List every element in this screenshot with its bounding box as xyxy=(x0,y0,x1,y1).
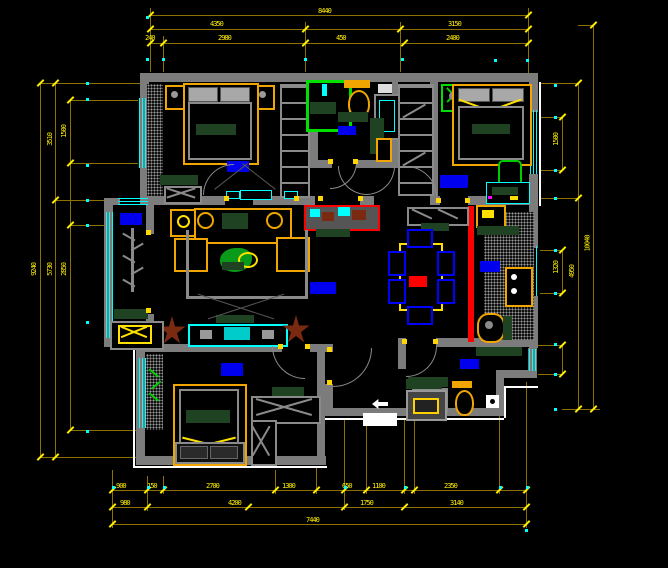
blanket xyxy=(472,124,510,134)
tv-shelf xyxy=(216,315,254,323)
rug xyxy=(460,359,479,369)
dim-ext xyxy=(70,163,138,164)
desk-item xyxy=(510,196,518,200)
dim-ext xyxy=(344,420,345,510)
wall-bath2-left xyxy=(398,347,406,369)
pillow xyxy=(188,87,218,102)
grip-dot xyxy=(554,116,557,119)
dim-line xyxy=(150,15,528,16)
dim-ext xyxy=(366,414,367,494)
dim-line xyxy=(562,345,563,374)
toilet2-bowl xyxy=(455,390,474,416)
dim-tick xyxy=(559,370,567,378)
dim-label: 2980 xyxy=(218,35,231,42)
grip-dot xyxy=(499,486,502,489)
dim-line xyxy=(70,100,71,430)
dim-label: 1500 xyxy=(553,133,560,146)
entry-mat-inner xyxy=(413,398,439,414)
door-jamb xyxy=(465,198,470,203)
pillow xyxy=(220,87,250,102)
door-swing xyxy=(406,346,437,377)
grip-dot xyxy=(526,59,529,62)
grip-dot xyxy=(404,486,407,489)
finish-line xyxy=(504,388,506,418)
dim-ext xyxy=(414,418,415,494)
dim-ext xyxy=(70,100,138,101)
door-swing xyxy=(366,166,395,195)
footboard-cell xyxy=(210,446,238,459)
grip-dot xyxy=(112,486,115,489)
dim-label: 1750 xyxy=(360,500,373,507)
dim-label: 1320 xyxy=(553,261,560,274)
grip-dot xyxy=(554,249,557,252)
kettle-lid xyxy=(485,321,493,329)
door-swing xyxy=(338,166,367,195)
counter-strip xyxy=(503,316,512,340)
grip-dot xyxy=(554,292,557,295)
aquarium-rock xyxy=(352,210,366,220)
wardrobe-x xyxy=(251,420,277,466)
stove xyxy=(505,267,533,307)
dim-ext xyxy=(499,414,500,494)
hall-bench xyxy=(160,175,198,185)
finish-line xyxy=(539,82,541,206)
dim-label: 2400 xyxy=(446,35,459,42)
sliding-door xyxy=(240,190,272,200)
dim-tick xyxy=(559,289,567,297)
door-swing xyxy=(203,164,234,195)
window xyxy=(118,198,148,205)
dim-label: 240 xyxy=(145,35,155,42)
dining-chair xyxy=(407,306,433,325)
dim-line xyxy=(112,490,526,491)
dim-label: 9240 xyxy=(31,263,38,276)
dim-label: 10040 xyxy=(585,235,592,251)
wall-interior xyxy=(325,384,333,410)
rug xyxy=(120,213,142,225)
grip-dot xyxy=(86,321,89,324)
rug xyxy=(480,261,500,272)
dim-line xyxy=(562,250,563,293)
burner xyxy=(511,274,517,280)
rug xyxy=(440,177,467,188)
dim-label: 3510 xyxy=(47,133,54,146)
balcony-shelf xyxy=(114,309,148,319)
grip-dot xyxy=(525,529,528,532)
speaker xyxy=(200,330,212,339)
shower-shelf xyxy=(310,102,336,114)
dim-label: 7440 xyxy=(306,517,319,524)
grip-dot xyxy=(554,169,557,172)
sofa-cushion xyxy=(222,213,248,229)
dining-chair xyxy=(388,279,406,304)
door-jamb xyxy=(328,159,333,164)
window xyxy=(106,212,113,338)
door-jamb xyxy=(353,159,358,164)
grip-dot xyxy=(554,373,557,376)
nightstand-lamp xyxy=(259,91,266,98)
door-jamb xyxy=(318,196,323,201)
grip-dot xyxy=(146,16,149,19)
rug xyxy=(310,282,336,294)
grip-dot xyxy=(86,82,89,85)
dim-label: 1500 xyxy=(61,125,68,138)
grip-dot xyxy=(86,224,89,227)
table-centerpiece xyxy=(409,276,427,287)
shelf-niche xyxy=(378,84,392,93)
grip-dot xyxy=(304,58,307,61)
door-jamb xyxy=(358,196,363,201)
grip-dot xyxy=(86,164,89,167)
dim-line xyxy=(150,43,528,44)
tv xyxy=(224,327,250,340)
desk-item xyxy=(488,196,492,199)
door-jamb xyxy=(146,230,151,235)
door-jamb xyxy=(436,198,441,203)
door-swing xyxy=(333,348,372,387)
dim-label: 3140 xyxy=(450,500,463,507)
grip-dot xyxy=(401,58,404,61)
door-jamb xyxy=(433,339,438,344)
kitchen-sink xyxy=(482,210,494,218)
grip-dot xyxy=(86,98,89,101)
sofa-arm xyxy=(266,212,283,229)
finish-line xyxy=(504,386,538,388)
grip-dot xyxy=(162,58,165,61)
door-jamb xyxy=(327,347,332,352)
grip-dot xyxy=(86,430,89,433)
grip-dot xyxy=(554,343,557,346)
dim-line xyxy=(150,29,528,30)
toilet2-tank xyxy=(452,381,472,388)
dining-chair xyxy=(437,251,455,276)
burner xyxy=(511,288,517,294)
dim-ext xyxy=(55,200,104,201)
dim-ext xyxy=(540,83,578,84)
dining-chair xyxy=(407,229,433,248)
door-jamb xyxy=(224,196,229,201)
partition-red xyxy=(468,206,474,342)
bath2-counter xyxy=(476,347,522,356)
grip-dot xyxy=(344,486,347,489)
dim-line xyxy=(562,117,563,170)
door-jamb xyxy=(278,344,283,349)
footboard-cell xyxy=(180,446,208,459)
grip-dot xyxy=(86,199,89,202)
grip-dot xyxy=(163,486,166,489)
bath-cabinet xyxy=(338,112,368,122)
dim-label: 4950 xyxy=(569,265,576,278)
toilet-tank xyxy=(344,80,370,88)
dim-label: 980 xyxy=(120,500,130,507)
dim-label: 4200 xyxy=(228,500,241,507)
wall-interior xyxy=(310,344,325,352)
dim-line xyxy=(40,83,41,457)
dim-ext xyxy=(70,430,136,431)
window xyxy=(529,349,536,371)
grip-dot xyxy=(554,197,557,200)
rug xyxy=(221,363,243,376)
dim-label: 4350 xyxy=(210,21,223,28)
grip-dot xyxy=(526,486,529,489)
finish-line xyxy=(133,466,327,468)
door-jamb xyxy=(402,339,407,344)
coffee-table-leaf xyxy=(222,262,244,270)
door-jamb xyxy=(305,344,310,349)
dim-ext xyxy=(404,418,405,494)
blanket xyxy=(186,410,230,423)
dim-label: 2700 xyxy=(206,483,219,490)
dim-line xyxy=(578,83,579,409)
blanket xyxy=(196,124,236,135)
grip-dot xyxy=(554,408,557,411)
floor-plan-canvas: 8440 4350 3150 240 2980 450 2400 900 150… xyxy=(0,0,668,568)
door-jamb xyxy=(327,380,332,385)
dim-label: 2350 xyxy=(444,483,457,490)
console-shelf xyxy=(316,229,350,237)
shower-head xyxy=(322,84,327,96)
finish-line xyxy=(133,346,135,468)
end-table-decor xyxy=(177,215,190,228)
entry-label-block xyxy=(363,413,397,426)
window xyxy=(139,98,146,168)
entry-shelf xyxy=(406,379,442,389)
dining-chair xyxy=(388,251,406,276)
aquarium-fish xyxy=(310,209,320,217)
door-jamb xyxy=(294,196,299,201)
counter-top xyxy=(477,226,519,235)
rug xyxy=(338,126,356,135)
dim-label: 900 xyxy=(116,483,126,490)
dim-label: 5730 xyxy=(47,263,54,276)
dim-line xyxy=(55,83,56,457)
dim-label: 1300 xyxy=(282,483,295,490)
window xyxy=(139,358,146,428)
desk-top xyxy=(492,187,518,195)
dim-label: 450 xyxy=(336,35,346,42)
light-line xyxy=(242,163,276,190)
door-jamb xyxy=(146,308,151,313)
grip-dot xyxy=(554,84,557,87)
aquarium-rock xyxy=(322,212,334,221)
dim-ext xyxy=(112,470,113,528)
dim-line xyxy=(593,25,594,409)
dim-tick xyxy=(559,166,567,174)
paper-roll xyxy=(490,399,495,404)
dim-label: 8440 xyxy=(318,8,331,15)
grip-dot xyxy=(147,486,150,489)
dim-ext xyxy=(540,198,578,199)
dim-line xyxy=(112,507,526,508)
bath-cabinet-small xyxy=(376,138,392,162)
grip-dot xyxy=(494,59,497,62)
dim-line xyxy=(112,524,526,525)
dim-label: 3150 xyxy=(448,21,461,28)
nightstand-lamp xyxy=(171,91,178,98)
grip-dot xyxy=(146,58,149,61)
aquarium-fish xyxy=(338,207,350,216)
dim-label: 1100 xyxy=(372,483,385,490)
speaker xyxy=(262,330,274,339)
door-swing xyxy=(272,346,305,379)
dim-label: 2850 xyxy=(61,263,68,276)
dining-chair xyxy=(437,279,455,304)
sofa-arm xyxy=(197,212,214,229)
